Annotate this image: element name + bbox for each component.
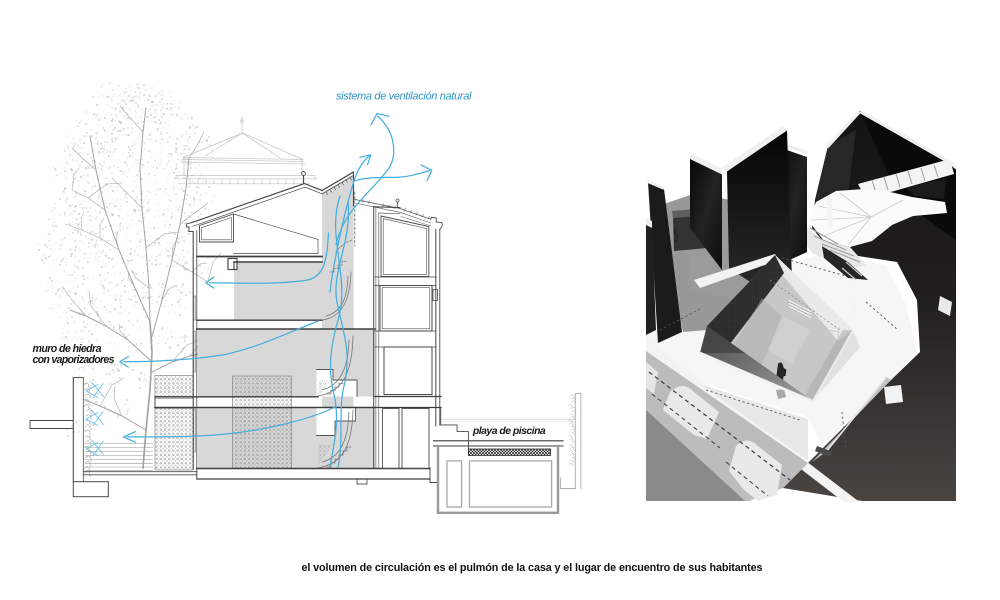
svg-text:el volumen de circulación es e: el volumen de circulación es el pulmón d… bbox=[302, 562, 763, 574]
svg-text:playa de piscina: playa de piscina bbox=[472, 426, 546, 437]
svg-text:sistema de ventilación natural: sistema de ventilación natural bbox=[336, 91, 472, 103]
svg-text:con vaporizadores: con vaporizadores bbox=[33, 354, 115, 366]
